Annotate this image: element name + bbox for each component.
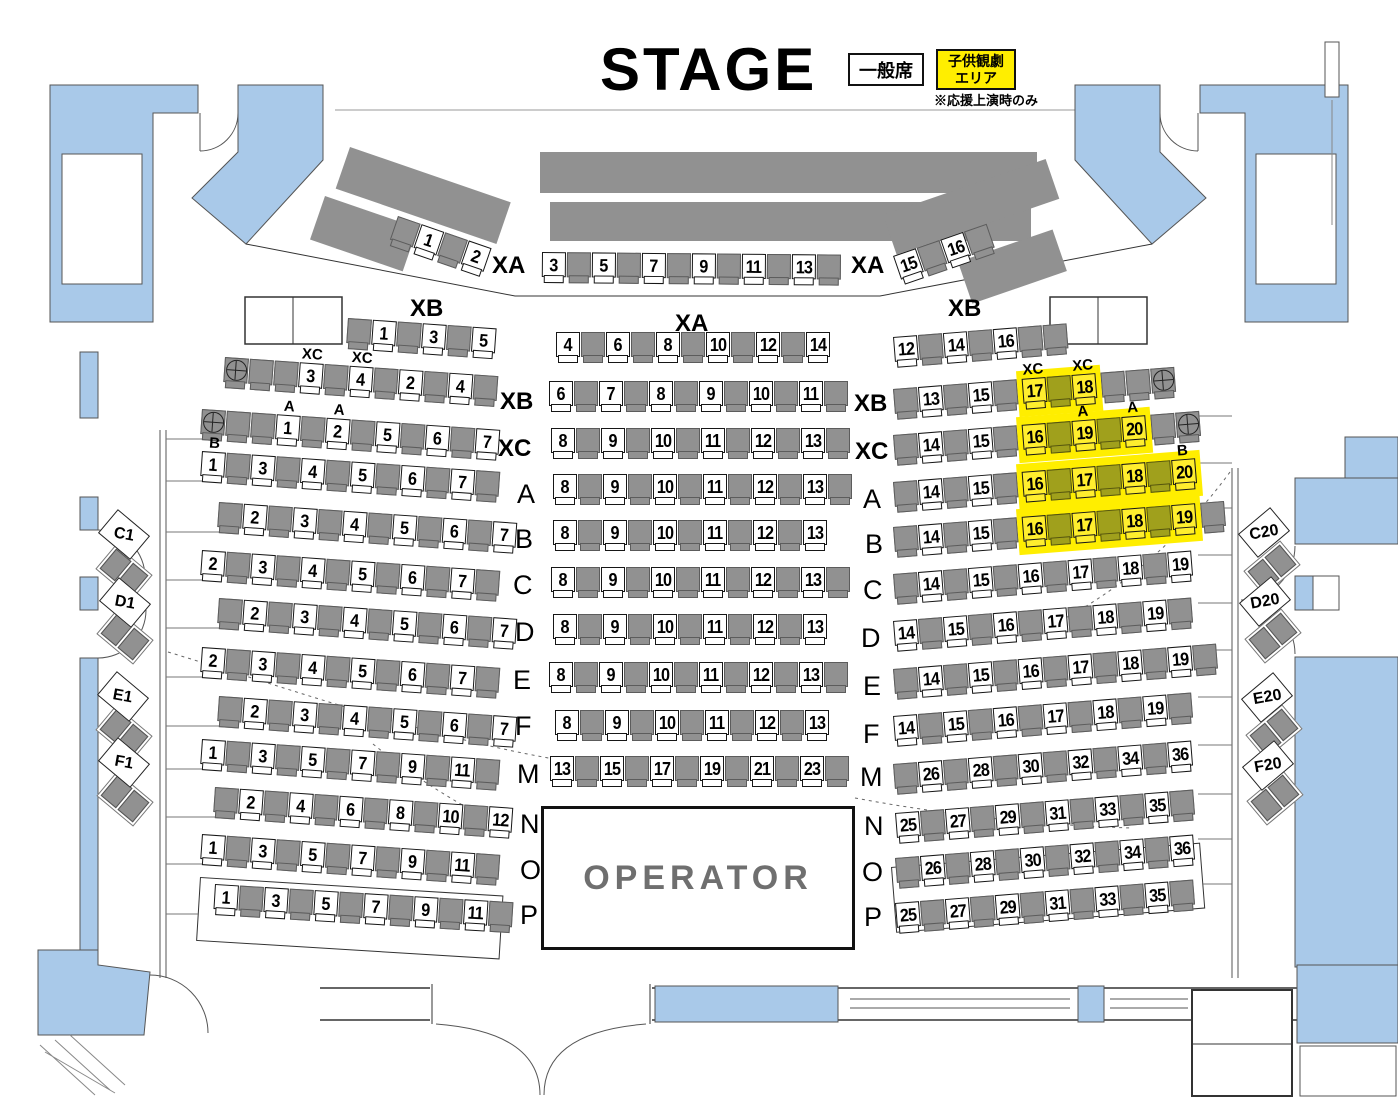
side-seat-E1: E1	[97, 671, 149, 722]
seat	[726, 428, 750, 453]
seat	[920, 899, 946, 926]
row-label-XA2: XB	[948, 297, 981, 321]
seat	[893, 480, 919, 507]
row-C-left-section: 234567	[200, 550, 500, 596]
seat	[726, 567, 750, 592]
seat	[317, 703, 343, 730]
seat	[724, 662, 748, 687]
seat	[225, 411, 251, 438]
seat-B-15: 15	[968, 519, 994, 546]
seat	[423, 371, 449, 398]
seat	[213, 787, 239, 814]
seat-A-9: 9	[603, 474, 627, 499]
seat-F-2: 2	[242, 698, 268, 725]
seat-XA2-10: 10	[706, 332, 730, 357]
seat-N-27: 27	[945, 807, 971, 834]
seat-A-14: 14	[918, 478, 944, 505]
seat-P-9: 9	[413, 896, 438, 922]
seat-C-6: 6	[400, 564, 426, 591]
seat-D-13: 13	[803, 614, 827, 639]
seat-N-10: 10	[438, 803, 464, 830]
row-XA2-right-section: 121416	[893, 323, 1068, 362]
seat	[943, 429, 969, 456]
seat-B-12: 12	[753, 520, 777, 545]
seat-layer: XAXA12357911131516XBXAXB1354681012141214…	[0, 0, 1398, 1099]
seat-F-19: 19	[1142, 695, 1168, 722]
row-label-P: P	[520, 902, 538, 929]
seat-N-33: 33	[1094, 795, 1120, 822]
kids-area-seat	[1146, 460, 1172, 487]
row-label-A: A	[517, 481, 535, 508]
seat-D-8: 8	[553, 614, 577, 639]
seat-B-6: 6	[442, 518, 468, 545]
seat	[1117, 696, 1143, 723]
seat	[1043, 560, 1069, 587]
kids-seat-A-20: 20B	[1171, 458, 1197, 485]
seat	[313, 794, 339, 821]
seat	[375, 751, 401, 778]
seat-XA-7: 7	[642, 253, 666, 278]
seat-XC-7: 7	[475, 428, 501, 455]
seat-N-8: 8	[388, 799, 414, 826]
seat	[425, 663, 451, 690]
seat	[325, 843, 351, 870]
seat	[625, 756, 649, 781]
row-label-XA: XA	[851, 254, 884, 278]
seat	[678, 614, 702, 639]
seat	[1092, 556, 1118, 583]
seat	[943, 568, 969, 595]
seat-F-18: 18	[1092, 698, 1118, 725]
seat	[248, 359, 274, 386]
seat-E-16: 16	[1018, 657, 1044, 684]
seat	[273, 360, 299, 387]
seat	[225, 649, 251, 676]
row-A-center-section: 8910111213	[553, 474, 852, 499]
seat-E-4: 4	[300, 654, 326, 681]
seat	[778, 474, 802, 499]
seat-E-3: 3	[250, 650, 276, 677]
seat	[631, 332, 655, 357]
row-label-D: D	[515, 619, 535, 646]
seat-M-23: 23	[800, 756, 824, 781]
seat-P-33: 33	[1094, 885, 1120, 912]
row-XA-diagL-section: 12	[390, 216, 492, 272]
seat-F-10: 10	[655, 710, 679, 735]
seat	[970, 895, 996, 922]
seat-E-6: 6	[400, 661, 426, 688]
seat	[674, 662, 698, 687]
seat	[724, 381, 748, 406]
seat	[400, 423, 426, 450]
row-XC-left-section: 1A2A567	[200, 409, 500, 455]
seat-B-13: 13	[803, 520, 827, 545]
seat-XA-13: 13	[792, 254, 816, 279]
row-P-left-section: 1357911	[213, 884, 513, 927]
seat	[1119, 793, 1145, 820]
seat	[628, 474, 652, 499]
seat-M-34: 34	[1117, 744, 1143, 771]
seat-E-13: 13	[799, 662, 823, 687]
seat-B-10: 10	[653, 520, 677, 545]
row-M-center-section: 131517192123	[550, 756, 849, 781]
seat	[217, 598, 243, 625]
seat-XA-11: 11	[742, 254, 766, 279]
seat	[275, 456, 301, 483]
seat	[824, 381, 848, 406]
seat	[417, 516, 443, 543]
seat-N-2: 2	[238, 789, 264, 816]
seat-N-6: 6	[338, 796, 364, 823]
seat-XB-8: 8	[649, 381, 673, 406]
seat-XC-12: 12	[751, 428, 775, 453]
row-label-N: N	[520, 811, 540, 838]
kids-seat-A-18: 18	[1121, 462, 1147, 489]
seat	[417, 710, 443, 737]
seat-E-18: 18	[1117, 649, 1143, 676]
row-B-center-section: 8910111213	[553, 520, 827, 545]
seat-O-3: 3	[250, 837, 276, 864]
seat	[730, 710, 754, 735]
seat	[473, 374, 499, 401]
seat	[728, 520, 752, 545]
seat-A-12: 12	[753, 474, 777, 499]
seat	[576, 567, 600, 592]
seat-XB-15: 15	[968, 381, 994, 408]
seat	[624, 381, 648, 406]
seat-C-8: 8	[551, 567, 575, 592]
wheelchair-icon	[225, 359, 247, 381]
seat-XA-9: 9	[692, 253, 716, 278]
row-XA-center-section: 35791113	[542, 252, 841, 280]
row-F-center-section: 8910111213	[555, 710, 829, 735]
seat	[993, 564, 1019, 591]
seat	[367, 608, 393, 635]
kids-area-seat	[1047, 468, 1073, 495]
seat	[920, 809, 946, 836]
seat-XA2-3: 3	[421, 323, 447, 350]
seat	[678, 520, 702, 545]
seat-D-16: 16	[993, 611, 1019, 638]
seat-O-1: 1	[200, 834, 226, 861]
wheelchair-icon	[202, 411, 224, 433]
seat-XC-2: 2A	[325, 418, 351, 445]
seat	[467, 615, 493, 642]
seat-M-1: 1	[200, 739, 226, 766]
seat-O-26: 26	[920, 854, 946, 881]
row-label-O: O	[520, 857, 541, 884]
kids-area-seat	[1096, 417, 1122, 444]
seat	[450, 426, 476, 453]
seat	[774, 381, 798, 406]
seat-O-9: 9	[400, 848, 426, 875]
seat-A-4: 4	[300, 458, 326, 485]
seat-E-9: 9	[599, 662, 623, 687]
seat-XC-15: 15	[968, 427, 994, 454]
seat	[1125, 369, 1151, 396]
row-F-right-section: 141516171819	[893, 693, 1193, 741]
seat-N-4: 4	[288, 792, 314, 819]
seat	[1142, 648, 1168, 675]
seat	[943, 476, 969, 503]
seat-XB-3: 3XC	[298, 362, 324, 389]
seat	[1092, 746, 1118, 773]
seat	[993, 379, 1019, 406]
kids-seat-A-17: 17	[1071, 466, 1097, 493]
kids-seat-XC-19: 19A	[1071, 419, 1097, 446]
seat-F-14: 14	[893, 714, 919, 741]
seat-M-32: 32	[1067, 748, 1093, 775]
seat-A-3: 3	[250, 454, 276, 481]
seat-F-15: 15	[943, 710, 969, 737]
seat-M-13: 13	[550, 756, 574, 781]
row-XB-left-section: 3XC4XC24	[223, 357, 498, 401]
seat	[425, 850, 451, 877]
seat	[413, 801, 439, 828]
seat-M-3: 3	[250, 742, 276, 769]
row-label-XB: XB	[500, 390, 533, 414]
seat	[375, 463, 401, 490]
seat	[826, 567, 850, 592]
row-label-D: D	[861, 625, 881, 652]
seat-XA2-12: 12	[756, 332, 780, 357]
seat-C-13: 13	[801, 567, 825, 592]
seat	[1018, 325, 1044, 352]
seat	[1043, 750, 1069, 777]
row-label-F: F	[863, 721, 880, 748]
seat-A-10: 10	[653, 474, 677, 499]
seat	[728, 474, 752, 499]
row-label-A: A	[863, 486, 881, 513]
seat	[828, 474, 852, 499]
seat-A-5: 5	[350, 461, 376, 488]
seat	[893, 433, 919, 460]
seat	[817, 254, 841, 279]
seat	[475, 758, 501, 785]
seat-O-34: 34	[1119, 838, 1145, 865]
seat-F-6: 6	[442, 712, 468, 739]
seat-XC-6: 6	[425, 425, 451, 452]
seat	[446, 325, 472, 352]
seat-E-8: 8	[549, 662, 573, 687]
seat-XC-11: 11	[701, 428, 725, 453]
seat	[325, 460, 351, 487]
seat	[425, 467, 451, 494]
row-P-right-section: 252729313335	[895, 880, 1195, 928]
seat	[275, 744, 301, 771]
seat	[1169, 880, 1195, 907]
seat-M-17: 17	[650, 756, 674, 781]
kids-area-highlight: 17XC18XC	[1016, 365, 1103, 417]
seat	[725, 756, 749, 781]
row-O-left-section: 1357911	[200, 834, 500, 880]
seat	[367, 706, 393, 733]
seat	[275, 555, 301, 582]
seat-B-9: 9	[603, 520, 627, 545]
kids-seat-XC-16: 16	[1022, 423, 1048, 450]
seat	[338, 892, 363, 918]
seat	[1100, 371, 1126, 398]
seat	[267, 699, 293, 726]
seat	[225, 453, 251, 480]
row-B-left-section: 234567	[217, 502, 517, 548]
seat	[824, 662, 848, 687]
seat-O-5: 5	[300, 841, 326, 868]
row-label-XB: XB	[854, 392, 887, 416]
seat	[325, 656, 351, 683]
seat-D-17: 17	[1043, 607, 1069, 634]
seat-C-14: 14	[918, 570, 944, 597]
seat	[676, 567, 700, 592]
row-D-left-section: 234567	[217, 598, 517, 644]
seat-N-12: 12	[488, 806, 514, 833]
seat-B-4: 4	[342, 511, 368, 538]
seat	[288, 889, 313, 915]
seat-XB-9: 9	[699, 381, 723, 406]
seat	[1067, 700, 1093, 727]
seat	[375, 562, 401, 589]
row-N-right-section: 252729313335	[895, 790, 1195, 838]
seat	[945, 852, 971, 879]
seat-D-15: 15	[943, 615, 969, 642]
seat	[488, 901, 513, 927]
seat-XA2-12: 12	[893, 335, 919, 362]
seat-F-4: 4	[342, 705, 368, 732]
seat	[567, 252, 591, 277]
seat	[731, 332, 755, 357]
seat	[893, 762, 919, 789]
seat	[323, 364, 349, 391]
seat-B-8: 8	[553, 520, 577, 545]
seat-P-29: 29	[995, 893, 1021, 920]
seat-XA2-1: 1	[371, 320, 397, 347]
kids-area-seat	[1047, 375, 1073, 402]
seat-F-16: 16	[993, 706, 1019, 733]
seat-E-11: 11	[699, 662, 723, 687]
row-label-XA2: XB	[410, 297, 443, 321]
row-XC-center-section: 8910111213	[551, 428, 850, 453]
seat-P-35: 35	[1144, 882, 1170, 909]
row-label-XC: XC	[855, 440, 888, 464]
seat	[628, 614, 652, 639]
row-XA-diagR-section: 1516	[893, 224, 995, 280]
seat	[425, 566, 451, 593]
seat	[581, 332, 605, 357]
seat	[617, 253, 641, 278]
seat	[776, 428, 800, 453]
seat-XB-2: 2	[398, 369, 424, 396]
seat	[367, 512, 393, 539]
row-label-XA2: XA	[675, 312, 708, 336]
seat-XC-9: 9	[601, 428, 625, 453]
seat	[626, 428, 650, 453]
seat-M-7: 7	[350, 749, 376, 776]
seat	[1150, 413, 1176, 440]
row-B-right-section: 141516171819	[893, 501, 1226, 552]
kids-area-seat	[1096, 464, 1122, 491]
row-C-center-section: 8910111213	[551, 567, 850, 592]
seat	[1200, 501, 1226, 528]
seat	[728, 614, 752, 639]
seat-C-9: 9	[601, 567, 625, 592]
seat-M-36: 36	[1167, 741, 1193, 768]
row-label-C: C	[513, 572, 533, 599]
seat	[1043, 655, 1069, 682]
seat-O-11: 11	[450, 851, 476, 878]
row-O-right-section: 262830323436	[895, 835, 1195, 883]
seat	[225, 741, 251, 768]
seat	[325, 748, 351, 775]
seat	[825, 756, 849, 781]
seat-XA2-4: 4	[556, 332, 580, 357]
seat	[918, 333, 944, 360]
seat	[1045, 844, 1071, 871]
seat	[1142, 553, 1168, 580]
seat	[575, 756, 599, 781]
wheelchair-icon	[1152, 369, 1175, 392]
kids-area-seat	[1047, 513, 1073, 540]
seat-XB-6: 6	[549, 381, 573, 406]
seat	[1142, 743, 1168, 770]
seat-O-7: 7	[350, 844, 376, 871]
row-label-XA: XA	[492, 254, 525, 278]
seat-D-18: 18	[1092, 603, 1118, 630]
wheelchair-seat	[223, 357, 249, 384]
seat	[225, 552, 251, 579]
seat	[275, 839, 301, 866]
seat-P-5: 5	[313, 890, 338, 916]
seat-D-11: 11	[703, 614, 727, 639]
seat	[1069, 887, 1095, 914]
seat-M-21: 21	[750, 756, 774, 781]
seat-E-17: 17	[1067, 653, 1093, 680]
seat	[475, 470, 501, 497]
seat	[574, 381, 598, 406]
seat	[781, 332, 805, 357]
seat-E-2: 2	[200, 647, 226, 674]
seat	[1167, 693, 1193, 720]
seat	[1043, 323, 1069, 350]
row-XB-center-section: 67891011	[549, 381, 848, 406]
seat	[225, 836, 251, 863]
kids-seat-B-16: 16	[1022, 515, 1048, 542]
seat	[267, 505, 293, 532]
seat	[918, 712, 944, 739]
seat	[576, 428, 600, 453]
seat	[475, 569, 501, 596]
seat-C-19: 19	[1167, 551, 1193, 578]
seat	[1094, 840, 1120, 867]
seat	[630, 710, 654, 735]
seat-XB-7: 7	[599, 381, 623, 406]
seat-C-11: 11	[701, 567, 725, 592]
row-label-M: M	[860, 764, 883, 791]
seat-C-3: 3	[250, 553, 276, 580]
seat-XA-3: 3	[542, 252, 566, 277]
seat	[1117, 601, 1143, 628]
seat	[467, 713, 493, 740]
kids-seat-A-16: 16	[1022, 470, 1048, 497]
seat-A-15: 15	[968, 474, 994, 501]
seat-D-14: 14	[893, 619, 919, 646]
seat-XA2-14: 14	[806, 332, 830, 357]
seat	[1167, 598, 1193, 625]
seat-O-30: 30	[1020, 846, 1046, 873]
row-label-P: P	[864, 904, 882, 931]
seat	[993, 517, 1019, 544]
row-D-center-section: 8910111213	[553, 614, 827, 639]
seat	[417, 612, 443, 639]
